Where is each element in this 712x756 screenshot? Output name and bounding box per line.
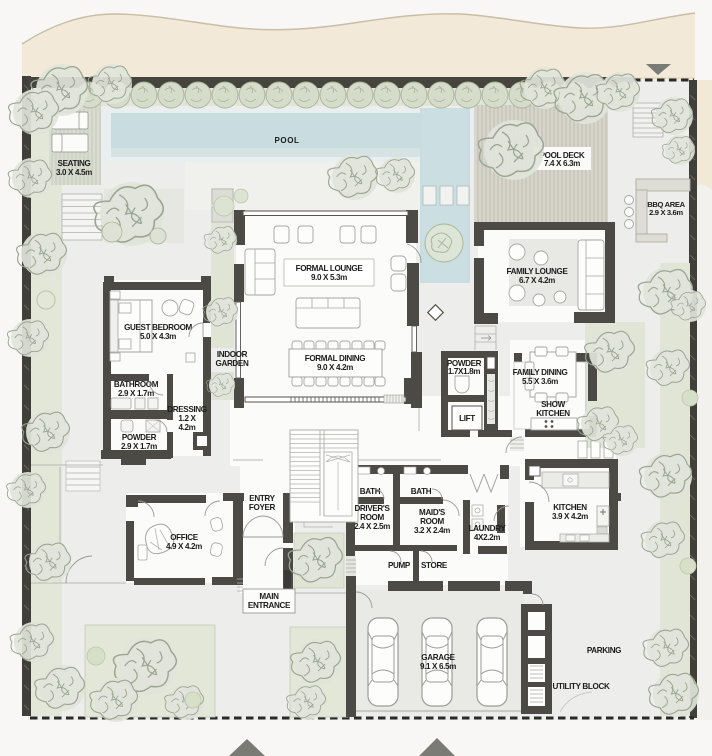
- svg-text:OFFICE: OFFICE: [170, 533, 199, 542]
- svg-text:LIFT: LIFT: [459, 414, 475, 423]
- svg-text:4.2m: 4.2m: [178, 423, 195, 432]
- svg-text:3.2 X 2.4m: 3.2 X 2.4m: [414, 526, 450, 535]
- svg-text:MAIN: MAIN: [259, 592, 279, 601]
- svg-text:GARDEN: GARDEN: [216, 359, 249, 368]
- svg-text:5.0 X 4.3m: 5.0 X 4.3m: [140, 332, 176, 341]
- svg-text:2.9 X 3.6m: 2.9 X 3.6m: [649, 208, 683, 217]
- svg-text:ENTRANCE: ENTRANCE: [248, 601, 291, 610]
- svg-text:FAMILY LOUNGE: FAMILY LOUNGE: [506, 267, 568, 276]
- svg-text:KITCHEN: KITCHEN: [553, 503, 587, 512]
- svg-text:BATH: BATH: [360, 487, 381, 496]
- svg-text:MAID'S: MAID'S: [419, 508, 446, 517]
- svg-text:SHOW: SHOW: [541, 400, 565, 409]
- svg-text:BATH: BATH: [411, 487, 432, 496]
- svg-text:2.9 X 1.7m: 2.9 X 1.7m: [121, 442, 157, 451]
- svg-text:SEATING: SEATING: [58, 159, 91, 168]
- svg-text:2.9 X 1.7m: 2.9 X 1.7m: [118, 389, 154, 398]
- svg-text:ROOM: ROOM: [360, 513, 384, 522]
- svg-text:KITCHEN: KITCHEN: [536, 409, 570, 418]
- svg-text:BATHROOM: BATHROOM: [114, 380, 159, 389]
- svg-text:UTILITY BLOCK: UTILITY BLOCK: [553, 682, 610, 691]
- svg-text:1.7X1.8m: 1.7X1.8m: [448, 367, 480, 376]
- svg-text:1.2 X: 1.2 X: [178, 414, 196, 423]
- svg-text:FAMILY DINING: FAMILY DINING: [513, 368, 568, 377]
- svg-text:ROOM: ROOM: [420, 517, 444, 526]
- svg-text:4.9 X 4.2m: 4.9 X 4.2m: [166, 542, 202, 551]
- svg-text:7.4 X 6.3m: 7.4 X 6.3m: [544, 159, 580, 168]
- svg-text:GUEST BEDROOM: GUEST BEDROOM: [124, 323, 192, 332]
- svg-text:FORMAL LOUNGE: FORMAL LOUNGE: [296, 264, 364, 273]
- svg-text:ENTRY: ENTRY: [249, 494, 275, 503]
- svg-text:PARKING: PARKING: [587, 646, 621, 655]
- svg-text:POWDER: POWDER: [122, 433, 157, 442]
- svg-text:STORE: STORE: [421, 561, 448, 570]
- svg-text:9.0 X 5.3m: 9.0 X 5.3m: [311, 273, 347, 282]
- svg-text:DRIVER'S: DRIVER'S: [354, 504, 390, 513]
- svg-text:POOL: POOL: [274, 136, 299, 145]
- svg-text:4X2.2m: 4X2.2m: [474, 533, 500, 542]
- svg-text:9.0 X 4.2m: 9.0 X 4.2m: [317, 363, 353, 372]
- svg-text:GARAGE: GARAGE: [421, 653, 455, 662]
- svg-text:3.0 X 4.5m: 3.0 X 4.5m: [56, 168, 92, 177]
- svg-text:LAUNDRY: LAUNDRY: [469, 524, 507, 533]
- svg-text:9.1 X 6.5m: 9.1 X 6.5m: [420, 662, 456, 671]
- svg-text:DRESSING: DRESSING: [167, 405, 207, 414]
- svg-text:6.7 X 4.2m: 6.7 X 4.2m: [519, 276, 555, 285]
- svg-text:FOYER: FOYER: [249, 503, 276, 512]
- svg-text:INDOOR: INDOOR: [217, 350, 248, 359]
- svg-text:2.4 X 2.5m: 2.4 X 2.5m: [354, 522, 390, 531]
- svg-text:5.5 X 3.6m: 5.5 X 3.6m: [522, 377, 558, 386]
- svg-text:PUMP: PUMP: [388, 561, 411, 570]
- svg-text:FORMAL DINING: FORMAL DINING: [305, 354, 366, 363]
- svg-text:3.9 X 4.2m: 3.9 X 4.2m: [552, 512, 588, 521]
